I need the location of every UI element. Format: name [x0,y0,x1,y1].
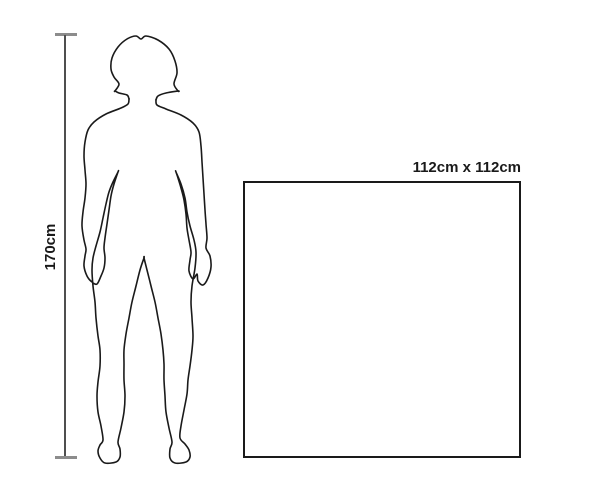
size-label: 112cm x 112cm [413,159,521,177]
size-comparison-diagram: 170cm 112cm x 112cm [0,0,600,500]
size-square [243,181,521,458]
